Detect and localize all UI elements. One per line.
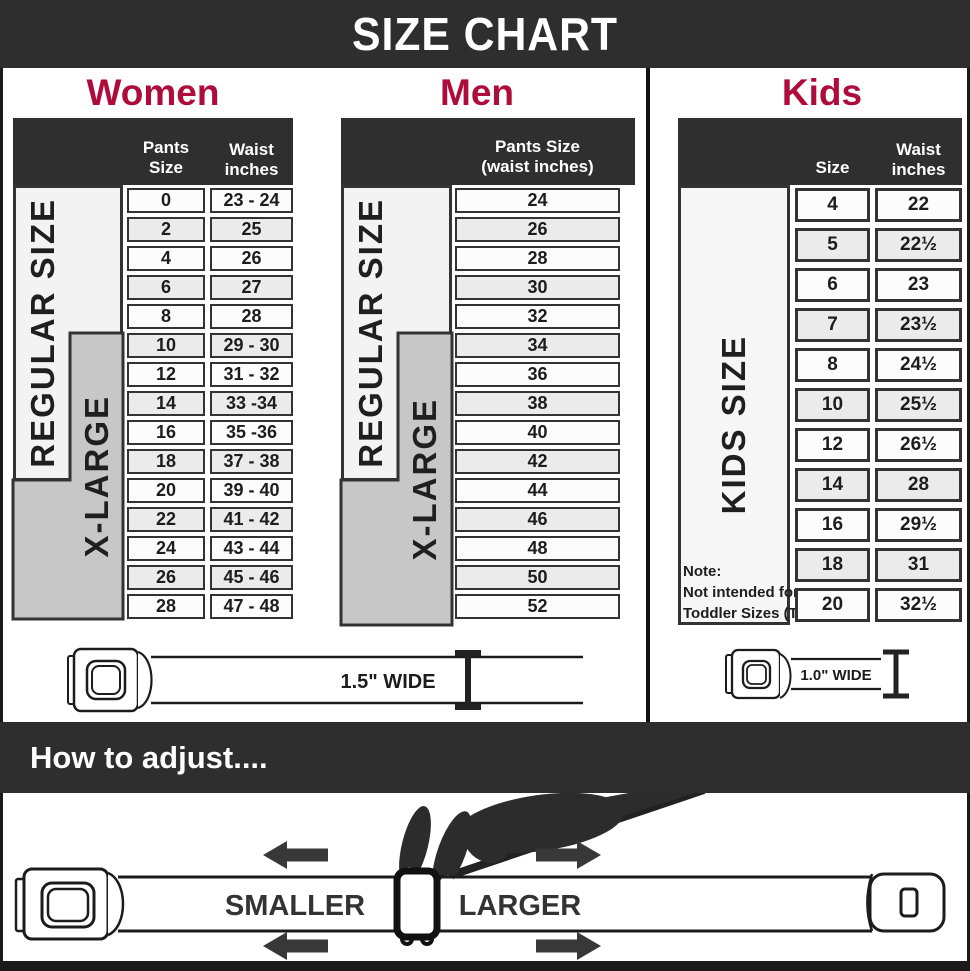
pants-size-cell: 40 (455, 420, 620, 445)
waist-inches-cell: 43 - 44 (210, 536, 293, 561)
men-pants-size-header: Pants Size (waist inches) (455, 137, 620, 177)
women-waist-header: Waist inches (210, 140, 293, 180)
pants-size-cell: 52 (455, 594, 620, 619)
pants-size-cell: 50 (455, 565, 620, 590)
women-table-row: 1433 -34 (127, 391, 293, 416)
waist-inches-cell: 27 (210, 275, 293, 300)
women-table-row: 627 (127, 275, 293, 300)
waist-inches-cell: 25½ (875, 388, 962, 422)
adult-belt-illustration: 1.5" WIDE (55, 640, 595, 718)
pants-size-cell: 30 (455, 275, 620, 300)
women-table-row: 023 - 24 (127, 188, 293, 213)
size-chart-title: SIZE CHART (352, 7, 618, 61)
kids-table-row: 824½ (795, 348, 962, 382)
waist-inches-cell: 23½ (875, 308, 962, 342)
pants-size-cell: 16 (127, 420, 205, 445)
waist-inches-cell: 32½ (875, 588, 962, 622)
larger-label: LARGER (459, 890, 582, 922)
kids-table-row: 723½ (795, 308, 962, 342)
waist-inches-cell: 26½ (875, 428, 962, 462)
size-cell: 8 (795, 348, 870, 382)
pants-size-cell: 26 (455, 217, 620, 242)
kids-belt-width-label: 1.0" WIDE (800, 667, 871, 684)
kids-table-row: 1025½ (795, 388, 962, 422)
pants-size-cell: 46 (455, 507, 620, 532)
pants-size-cell: 28 (127, 594, 205, 619)
how-to-adjust-banner: How to adjust.... (0, 722, 970, 793)
women-table-row: 1029 - 30 (127, 333, 293, 358)
men-heading: Men (337, 72, 617, 114)
waist-inches-cell: 23 - 24 (210, 188, 293, 213)
pants-size-cell: 44 (455, 478, 620, 503)
women-table-row: 2241 - 42 (127, 507, 293, 532)
adjustment-illustration: SMALLER LARGER (0, 793, 970, 971)
adult-belt-width-label: 1.5" WIDE (340, 671, 435, 693)
men-table-header: Pants Size (waist inches) (341, 118, 635, 185)
waist-inches-cell: 45 - 46 (210, 565, 293, 590)
waist-inches-cell: 41 - 42 (210, 507, 293, 532)
waist-inches-cell: 24½ (875, 348, 962, 382)
waist-inches-cell: 23 (875, 268, 962, 302)
kids-table-row: 623 (795, 268, 962, 302)
kids-table-row: 1226½ (795, 428, 962, 462)
women-table-row: 1231 - 32 (127, 362, 293, 387)
size-cell: 4 (795, 188, 870, 222)
waist-inches-cell: 22 (875, 188, 962, 222)
pants-size-cell: 26 (127, 565, 205, 590)
women-table-row: 2847 - 48 (127, 594, 293, 619)
pants-size-cell: 42 (455, 449, 620, 474)
women-xlarge-label: X-LARGE (70, 333, 123, 619)
arrow-right-icon (536, 932, 601, 960)
waist-inches-cell: 26 (210, 246, 293, 271)
size-cell: 6 (795, 268, 870, 302)
waist-inches-cell: 31 - 32 (210, 362, 293, 387)
men-regular-size-label: REGULAR SIZE (341, 185, 401, 481)
size-cell: 16 (795, 508, 870, 542)
pants-size-cell: 34 (455, 333, 620, 358)
women-table-header: Pants Size Waist inches (13, 118, 293, 185)
kids-table-row: 1428 (795, 468, 962, 502)
women-heading: Women (13, 72, 293, 114)
belt-adjuster-slider (397, 871, 437, 944)
pants-size-cell: 18 (127, 449, 205, 474)
pants-size-cell: 24 (455, 188, 620, 213)
women-table-row: 2645 - 46 (127, 565, 293, 590)
how-to-adjust-heading: How to adjust.... (30, 740, 268, 776)
kids-table-row: 1629½ (795, 508, 962, 542)
pants-size-cell: 10 (127, 333, 205, 358)
size-cell: 14 (795, 468, 870, 502)
kids-size-header: Size (795, 158, 870, 178)
waist-inches-cell: 29 - 30 (210, 333, 293, 358)
pants-size-cell: 22 (127, 507, 205, 532)
size-cell: 18 (795, 548, 870, 582)
women-table-row: 1635 -36 (127, 420, 293, 445)
men-table: 242628303234363840424446485052 (455, 188, 620, 623)
size-chart-page: SIZE CHART Women Men Kids Pants Size Wai… (0, 0, 970, 971)
women-table-row: 828 (127, 304, 293, 329)
smaller-label: SMALLER (225, 890, 365, 922)
waist-inches-cell: 28 (875, 468, 962, 502)
kids-table-row: 422 (795, 188, 962, 222)
women-regular-size-label: REGULAR SIZE (13, 185, 73, 481)
arrow-left-icon (263, 841, 328, 869)
size-cell: 7 (795, 308, 870, 342)
kids-waist-header: Waist inches (875, 140, 962, 180)
waist-inches-cell: 28 (210, 304, 293, 329)
waist-inches-cell: 35 -36 (210, 420, 293, 445)
pants-size-cell: 28 (455, 246, 620, 271)
size-cell: 10 (795, 388, 870, 422)
waist-inches-cell: 29½ (875, 508, 962, 542)
men-kids-divider (646, 68, 650, 722)
women-pants-size-header: Pants Size (127, 138, 205, 178)
waist-inches-cell: 22½ (875, 228, 962, 262)
pants-size-cell: 8 (127, 304, 205, 329)
waist-inches-cell: 25 (210, 217, 293, 242)
kids-heading: Kids (682, 72, 962, 114)
pants-size-cell: 48 (455, 536, 620, 561)
pants-size-cell: 14 (127, 391, 205, 416)
seatbelt-buckle-icon (726, 650, 791, 698)
women-table-row: 426 (127, 246, 293, 271)
arrow-left-icon (263, 932, 328, 960)
pants-size-cell: 4 (127, 246, 205, 271)
pants-size-cell: 32 (455, 304, 620, 329)
women-table: 023 - 242254266278281029 - 301231 - 3214… (127, 188, 293, 623)
pants-size-cell: 2 (127, 217, 205, 242)
women-table-row: 2443 - 44 (127, 536, 293, 561)
seatbelt-buckle-icon (16, 869, 123, 939)
kids-table-row: 1831 (795, 548, 962, 582)
waist-inches-cell: 47 - 48 (210, 594, 293, 619)
kids-table-row: 522½ (795, 228, 962, 262)
kids-table-row: 2032½ (795, 588, 962, 622)
pants-size-cell: 20 (127, 478, 205, 503)
belt-tip (868, 874, 945, 931)
waist-inches-cell: 31 (875, 548, 962, 582)
men-xlarge-label: X-LARGE (398, 333, 452, 625)
pants-size-cell: 24 (127, 536, 205, 561)
pants-size-cell: 36 (455, 362, 620, 387)
top-banner: SIZE CHART (0, 0, 970, 68)
waist-inches-cell: 33 -34 (210, 391, 293, 416)
seatbelt-buckle-icon (68, 649, 152, 711)
waist-inches-cell: 39 - 40 (210, 478, 293, 503)
size-cell: 20 (795, 588, 870, 622)
width-marker-icon (455, 652, 481, 708)
women-table-row: 1837 - 38 (127, 449, 293, 474)
waist-inches-cell: 37 - 38 (210, 449, 293, 474)
pants-size-cell: 6 (127, 275, 205, 300)
size-cell: 12 (795, 428, 870, 462)
size-cell: 5 (795, 228, 870, 262)
pants-size-cell: 12 (127, 362, 205, 387)
women-table-row: 2039 - 40 (127, 478, 293, 503)
women-table-row: 225 (127, 217, 293, 242)
kids-note: Note: Not intended for Toddler Sizes (T) (683, 561, 789, 624)
width-marker-icon (883, 651, 909, 697)
kids-table-header: Size Waist inches (678, 118, 962, 185)
pants-size-cell: 0 (127, 188, 205, 213)
pants-size-cell: 38 (455, 391, 620, 416)
kids-belt-illustration: 1.0" WIDE (718, 645, 930, 703)
kids-table: 422522½623723½824½1025½1226½14281629½183… (795, 188, 962, 628)
